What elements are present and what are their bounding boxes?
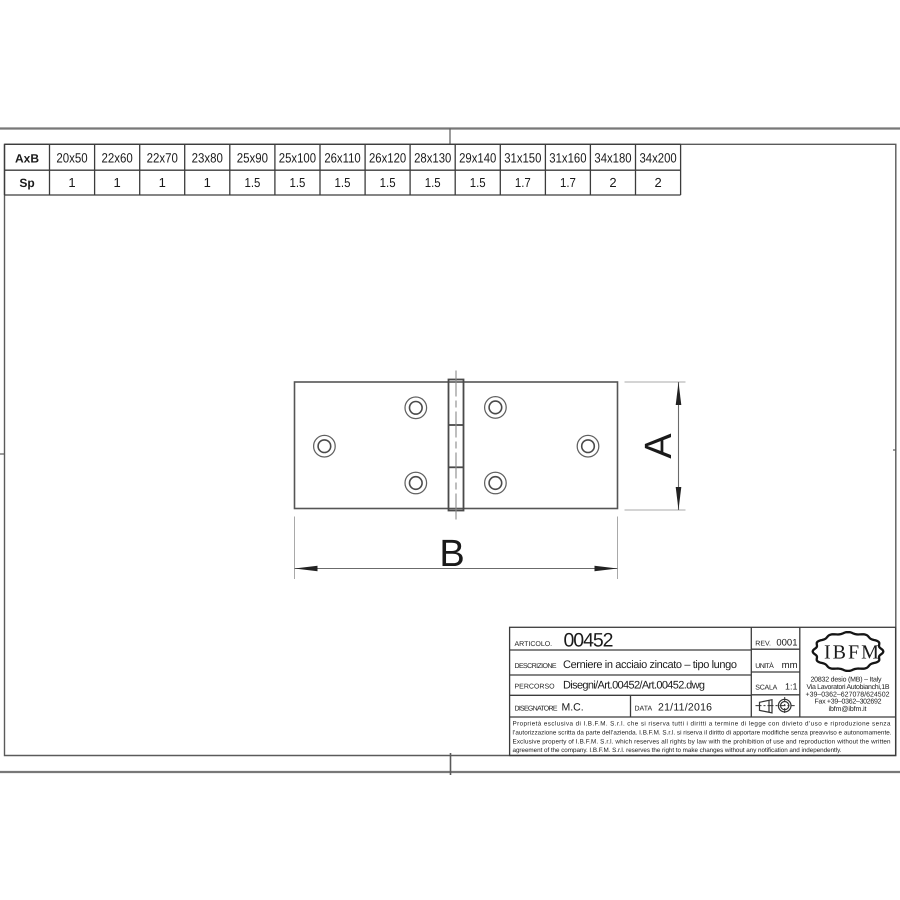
svg-text:20832 desio (MB) – Italy: 20832 desio (MB) – Italy xyxy=(811,676,883,684)
svg-text:DATA: DATA xyxy=(635,706,653,713)
svg-text:UNITÀ: UNITÀ xyxy=(755,661,774,670)
svg-text:DISEGNATORE: DISEGNATORE xyxy=(515,706,558,713)
svg-text:DESCRIZIONE: DESCRIZIONE xyxy=(515,663,557,670)
svg-text:2: 2 xyxy=(654,175,661,190)
svg-text:Sp: Sp xyxy=(19,176,34,190)
svg-text:25x100: 25x100 xyxy=(279,151,316,166)
svg-text:PERCORSO: PERCORSO xyxy=(515,683,556,690)
svg-text:1.5: 1.5 xyxy=(380,175,396,190)
svg-text:Disegni/Art.00452/Art.00452.dw: Disegni/Art.00452/Art.00452.dwg xyxy=(563,679,705,691)
svg-text:ibfm@ibfm.it: ibfm@ibfm.it xyxy=(829,705,867,713)
svg-text:mm: mm xyxy=(782,660,798,671)
svg-text:23x80: 23x80 xyxy=(192,151,223,166)
svg-text:31x150: 31x150 xyxy=(504,151,541,166)
svg-text:34x180: 34x180 xyxy=(594,151,631,166)
svg-text:31x160: 31x160 xyxy=(549,151,586,166)
svg-text:AxB: AxB xyxy=(15,152,39,166)
svg-text:1.5: 1.5 xyxy=(425,175,441,190)
svg-text:25x90: 25x90 xyxy=(237,151,268,166)
svg-text:1.5: 1.5 xyxy=(470,175,486,190)
svg-text:SCALA: SCALA xyxy=(755,685,777,692)
svg-text:26x120: 26x120 xyxy=(369,151,406,166)
svg-text:+39–0362–627078/624502: +39–0362–627078/624502 xyxy=(806,690,890,698)
svg-text:21/11/2016: 21/11/2016 xyxy=(658,702,712,714)
svg-text:1.7: 1.7 xyxy=(560,175,576,190)
svg-text:Proprietà esclusiva di I.B.F.M: Proprietà esclusiva di I.B.F.M. S.r.l. c… xyxy=(513,721,891,728)
svg-text:28x130: 28x130 xyxy=(414,151,451,166)
svg-text:A: A xyxy=(638,433,680,459)
svg-text:IBFM: IBFM xyxy=(824,642,881,664)
svg-text:agreement of the company. I.B.: agreement of the company. I.B.F.M. S.r.l… xyxy=(513,747,842,754)
svg-text:1:1: 1:1 xyxy=(785,682,798,692)
svg-text:1.5: 1.5 xyxy=(244,175,260,190)
svg-text:1.5: 1.5 xyxy=(289,175,305,190)
svg-text:22x60: 22x60 xyxy=(101,151,132,166)
svg-text:1: 1 xyxy=(204,175,211,190)
svg-text:29x140: 29x140 xyxy=(459,151,496,166)
svg-text:1.7: 1.7 xyxy=(515,175,531,190)
svg-text:Cerniere in acciaio zincato –: Cerniere in acciaio zincato – tipo lungo xyxy=(563,659,737,671)
svg-text:ARTICOLO.: ARTICOLO. xyxy=(515,641,553,648)
svg-text:B: B xyxy=(439,533,464,575)
svg-text:1: 1 xyxy=(68,175,75,190)
svg-text:22x70: 22x70 xyxy=(147,151,178,166)
svg-text:M.C.: M.C. xyxy=(562,702,584,714)
svg-text:1.5: 1.5 xyxy=(335,175,351,190)
svg-text:Exclusive property of I.B.F.M.: Exclusive property of I.B.F.M. S.r.l. wh… xyxy=(513,738,891,745)
svg-text:Via Lavoratori Autobianchi,1B: Via Lavoratori Autobianchi,1B xyxy=(807,683,890,691)
svg-text:Fax +39–0362–302692: Fax +39–0362–302692 xyxy=(815,699,882,706)
svg-text:0001: 0001 xyxy=(776,638,797,649)
svg-text:34x200: 34x200 xyxy=(639,151,676,166)
svg-text:00452: 00452 xyxy=(564,629,614,651)
svg-text:26x110: 26x110 xyxy=(324,151,360,166)
svg-text:1: 1 xyxy=(159,175,166,190)
svg-text:l’autorizzazione scritta da pa: l’autorizzazione scritta da parte dell’a… xyxy=(513,729,892,736)
svg-text:2: 2 xyxy=(609,175,616,190)
svg-text:20x50: 20x50 xyxy=(56,151,87,166)
svg-text:1: 1 xyxy=(113,175,120,190)
svg-text:REV.: REV. xyxy=(755,641,771,648)
